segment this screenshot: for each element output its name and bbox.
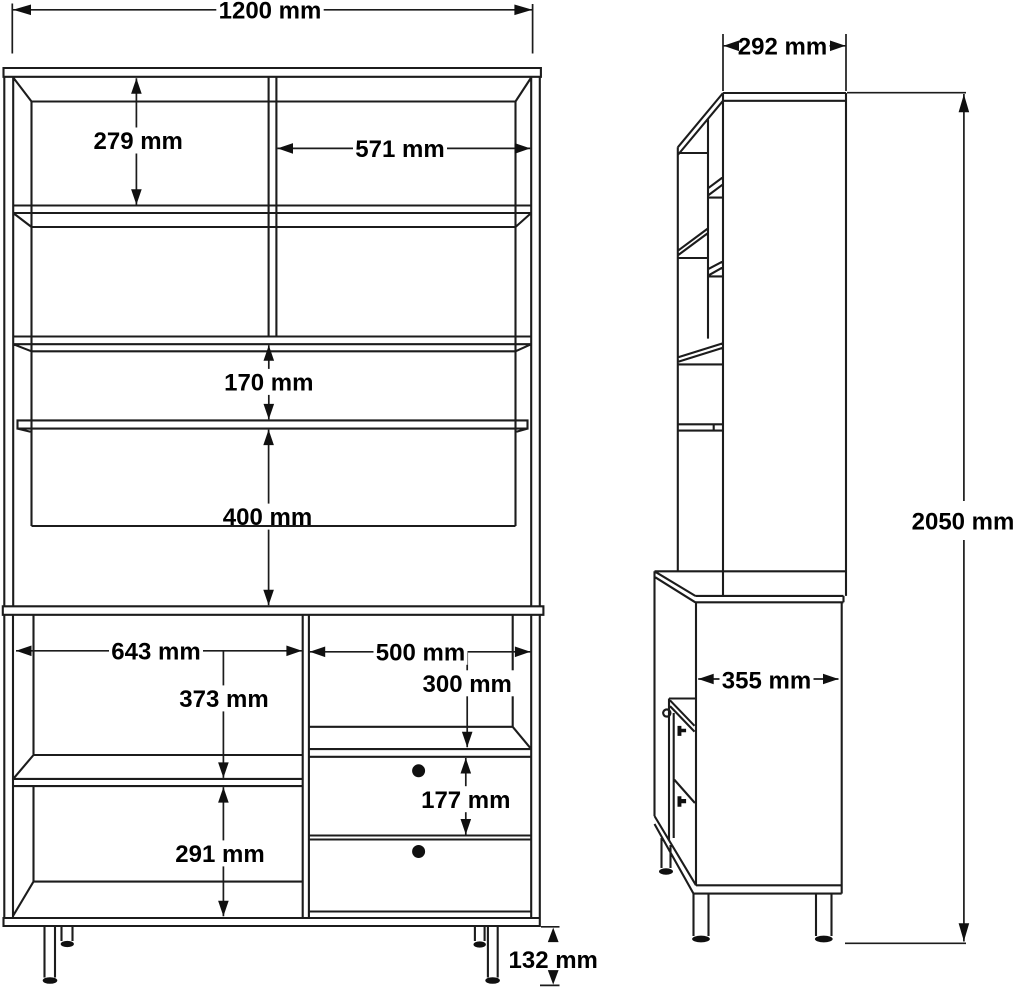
svg-text:2050 mm: 2050 mm [912, 509, 1015, 536]
svg-text:291 mm: 291 mm [175, 841, 264, 868]
svg-text:300 mm: 300 mm [423, 671, 512, 698]
svg-text:132 mm: 132 mm [509, 947, 598, 974]
svg-text:373 mm: 373 mm [179, 686, 268, 713]
svg-text:571 mm: 571 mm [355, 136, 444, 163]
svg-text:1200 mm: 1200 mm [219, 0, 322, 25]
svg-text:400 mm: 400 mm [223, 504, 312, 531]
svg-text:177 mm: 177 mm [421, 787, 510, 814]
svg-text:292 mm: 292 mm [738, 34, 827, 61]
svg-text:355 mm: 355 mm [722, 667, 811, 694]
svg-text:279 mm: 279 mm [94, 128, 183, 155]
svg-text:500 mm: 500 mm [376, 639, 465, 666]
svg-text:170 mm: 170 mm [224, 370, 313, 397]
svg-text:643 mm: 643 mm [111, 638, 200, 665]
